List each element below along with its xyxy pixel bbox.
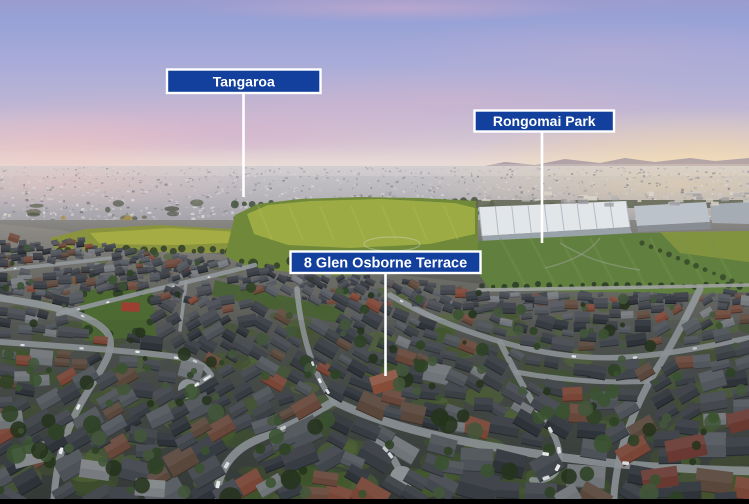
svg-text:8 Glen Osborne Terrace: 8 Glen Osborne Terrace <box>304 255 467 271</box>
svg-text:Rongomai Park: Rongomai Park <box>493 113 596 129</box>
svg-text:Tangaroa: Tangaroa <box>213 73 275 89</box>
